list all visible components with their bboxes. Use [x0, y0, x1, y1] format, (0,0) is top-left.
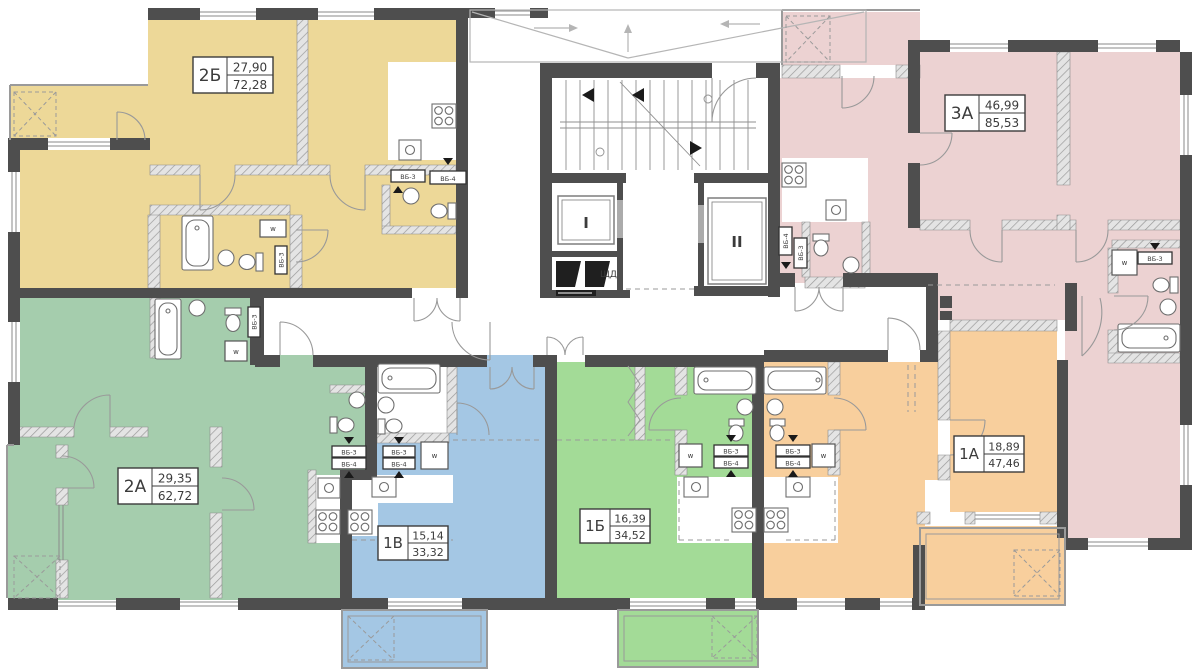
apartment-code: 1Б — [585, 517, 605, 535]
elevator-1-label: I — [583, 214, 589, 232]
balcony-1v — [342, 610, 487, 668]
living-area: 29,35 — [158, 472, 192, 486]
svg-text:ВБ-3: ВБ-3 — [391, 449, 406, 457]
svg-text:ВБ-3: ВБ-3 — [278, 252, 286, 267]
svg-text:w: w — [270, 225, 276, 233]
apartment-label-1a[interactable]: 1А 18,89 47,46 — [954, 436, 1024, 472]
svg-text:ВБ-3: ВБ-3 — [251, 314, 259, 329]
apartment-label-1v[interactable]: 1В 15,14 33,32 — [378, 526, 448, 560]
svg-text:w: w — [432, 452, 438, 460]
living-area: 18,89 — [988, 441, 1020, 454]
switchboard-label: ЩД — [600, 270, 617, 280]
svg-text:ВБ-4: ВБ-4 — [723, 460, 738, 468]
apartment-label-1b[interactable]: 1Б 16,39 34,52 — [580, 509, 650, 543]
stair-core: I II ЩД — [556, 80, 766, 296]
svg-text:ВБ-3: ВБ-3 — [400, 173, 415, 181]
svg-text:w: w — [688, 452, 694, 460]
total-area: 72,28 — [233, 78, 267, 92]
elevator-2-label: II — [731, 233, 742, 251]
balcony-3a — [782, 12, 920, 65]
total-area: 62,72 — [158, 489, 192, 503]
total-area: 33,32 — [412, 546, 444, 559]
living-area: 15,14 — [412, 530, 444, 543]
balcony-2b — [10, 85, 148, 140]
balcony-1a — [920, 526, 1065, 605]
apartment-code: 3А — [951, 104, 974, 124]
elevator-doors — [617, 200, 704, 243]
living-area: 27,90 — [233, 61, 267, 75]
svg-text:ВБ-3: ВБ-3 — [723, 448, 738, 456]
total-area: 85,53 — [985, 116, 1019, 130]
svg-text:ВБ-4: ВБ-4 — [440, 175, 455, 183]
svg-text:w: w — [821, 452, 827, 460]
svg-text:ВБ-4: ВБ-4 — [785, 460, 800, 468]
svg-text:ВБ-4: ВБ-4 — [391, 461, 406, 469]
svg-text:ВБ-4: ВБ-4 — [782, 233, 790, 248]
svg-text:ВБ-3: ВБ-3 — [785, 448, 800, 456]
svg-text:ВБ-3: ВБ-3 — [341, 449, 356, 457]
svg-text:ВБ-3: ВБ-3 — [1147, 255, 1162, 263]
apartment-code: 1В — [383, 534, 403, 552]
stair-direction-arrows — [582, 88, 702, 155]
svg-text:ВБ-3: ВБ-3 — [797, 245, 805, 260]
total-area: 47,46 — [988, 457, 1020, 470]
apartment-code: 1А — [959, 445, 980, 463]
floor-plan-svg: I II ЩД — [0, 0, 1200, 671]
apartment-label-2b[interactable]: 2Б 27,90 72,28 — [193, 57, 273, 93]
apartment-code: 2Б — [199, 66, 221, 86]
svg-text:w: w — [1122, 259, 1128, 267]
apartment-label-2a[interactable]: 2А 29,35 62,72 — [118, 468, 198, 504]
apartment-label-3a[interactable]: 3А 46,99 85,53 — [945, 95, 1025, 131]
living-area: 46,99 — [985, 99, 1019, 113]
living-area: 16,39 — [614, 513, 646, 526]
floor-plan: I II ЩД — [0, 0, 1200, 671]
svg-text:w: w — [233, 348, 239, 356]
total-area: 34,52 — [614, 529, 646, 542]
svg-text:ВБ-4: ВБ-4 — [341, 461, 356, 469]
apartment-code: 2А — [124, 477, 147, 497]
